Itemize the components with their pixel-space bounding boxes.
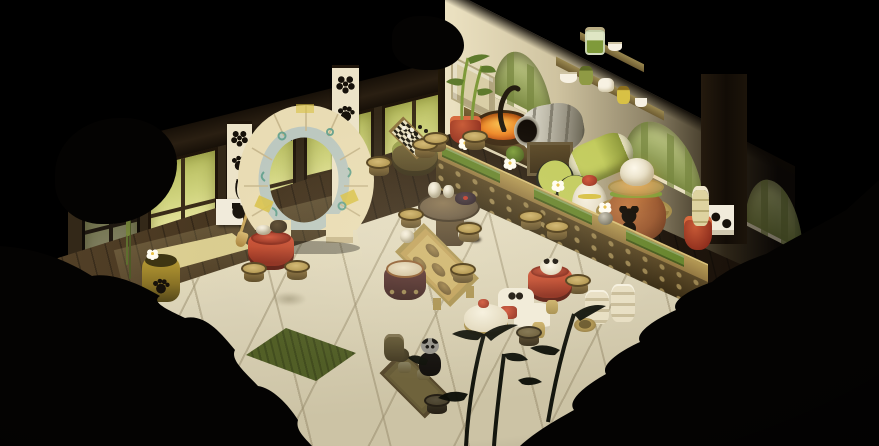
table-recess [429,261,447,279]
game-scene-panda-tavern [0,0,879,446]
teapot-white [400,230,414,243]
table-jar [443,185,454,198]
stool[interactable] [366,156,392,176]
glass-jar[interactable] [585,30,605,55]
shelf-pot[interactable] [598,78,614,92]
shelf-bowl-upper[interactable] [608,42,622,51]
stool[interactable] [398,208,424,228]
stool[interactable] [462,130,488,150]
shelf-cup[interactable] [635,98,647,107]
shelf-olive-jar[interactable] [579,66,593,85]
chess-pieces [402,126,406,130]
shelf-bowl[interactable] [560,72,577,83]
dark-kettle [270,220,287,233]
foreground-bamboo [408,290,688,446]
shadow-rocks-left [0,240,400,446]
white-lotus-flower [503,158,517,170]
red-dot [463,196,468,200]
white-bowl [256,225,271,235]
table-jar [428,182,441,198]
shelf-yellow-jar[interactable] [617,86,630,104]
flower-motif [335,74,356,94]
table-recess [423,241,441,259]
